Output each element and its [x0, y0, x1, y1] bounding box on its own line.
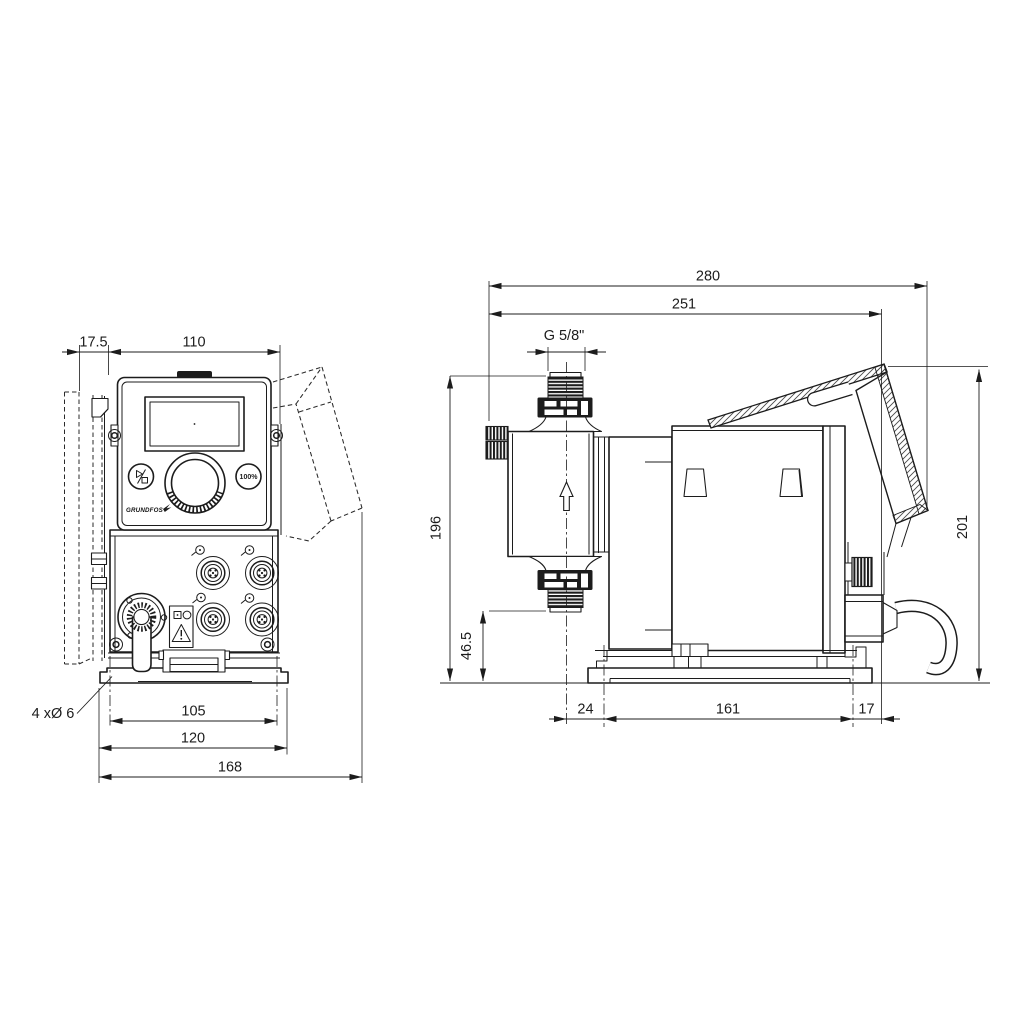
- control-panel: 100% GRUNDFOS: [118, 371, 272, 530]
- drawing-canvas: 100% GRUNDFOS: [0, 0, 1024, 1024]
- dim-text-196: 196: [429, 516, 445, 540]
- hundred-percent-label: 100%: [240, 474, 259, 481]
- dim-text-thread: G 5/8": [544, 328, 585, 344]
- m12-connector: [197, 603, 230, 636]
- head-body: [508, 432, 594, 557]
- dim-text-110: 110: [182, 335, 205, 351]
- click-wheel[interactable]: [165, 453, 225, 513]
- dim-text-17-5: 17.5: [79, 335, 107, 351]
- hole-note-text: 4 xØ 6: [32, 706, 75, 722]
- warning-label: [170, 606, 194, 648]
- dim-text-251: 251: [672, 297, 696, 313]
- dim-text-17: 17: [858, 702, 874, 718]
- discharge-thread: [548, 377, 583, 399]
- dim-text-168: 168: [218, 760, 242, 776]
- pump-dimensional-drawing: 100% GRUNDFOS: [0, 0, 1024, 1024]
- m12-connector: [246, 557, 279, 590]
- suction-port-tip: [550, 608, 581, 613]
- suction-coupling-nut: [538, 571, 592, 590]
- hundred-percent-button[interactable]: 100%: [236, 464, 261, 489]
- suction-thread: [548, 590, 583, 608]
- dim-text-105: 105: [181, 704, 205, 720]
- dim-text-280: 280: [696, 269, 720, 285]
- threaded-plug: [852, 558, 872, 587]
- start-stop-button[interactable]: [129, 464, 154, 489]
- dim-text-120: 120: [181, 731, 205, 747]
- discharge-coupling-nut: [538, 398, 592, 417]
- dim-text-24: 24: [577, 702, 593, 718]
- brand-wordmark: GRUNDFOS: [126, 507, 164, 514]
- cable-gland-side: [845, 595, 883, 642]
- bleed-valve: [486, 427, 508, 460]
- m12-connector: [197, 557, 230, 590]
- dim-text-201: 201: [955, 515, 971, 539]
- back-panel: [823, 426, 845, 653]
- m12-connector: [246, 603, 279, 636]
- motor-housing: [672, 426, 823, 651]
- pump-body-side: [609, 426, 845, 653]
- vent-slot: [684, 469, 707, 497]
- dim-text-161: 161: [716, 702, 740, 718]
- display: [145, 397, 244, 451]
- dim-text-46-5: 46.5: [459, 632, 475, 660]
